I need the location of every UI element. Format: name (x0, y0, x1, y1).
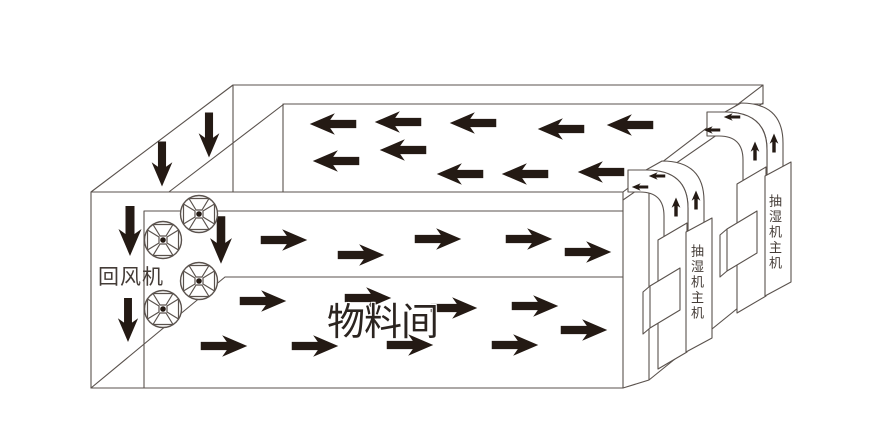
dehumidifier-main-label-near: 抽湿机主机 (689, 244, 703, 322)
return-fan-icon (181, 196, 218, 233)
airflow-diagram-svg (0, 0, 892, 434)
room-front-face (91, 192, 623, 388)
return-fan-icon (145, 291, 182, 328)
return-fan-icon (181, 263, 218, 300)
return-fan-label: 回风机 (98, 261, 164, 291)
return-fan-icon (145, 222, 182, 259)
dehumidifier-main-label-far: 抽湿机主机 (767, 194, 781, 272)
material-room-label: 物料间 (327, 291, 438, 346)
diagram-canvas: 回风机 物料间 抽湿机主机 抽湿机主机 (0, 0, 892, 434)
